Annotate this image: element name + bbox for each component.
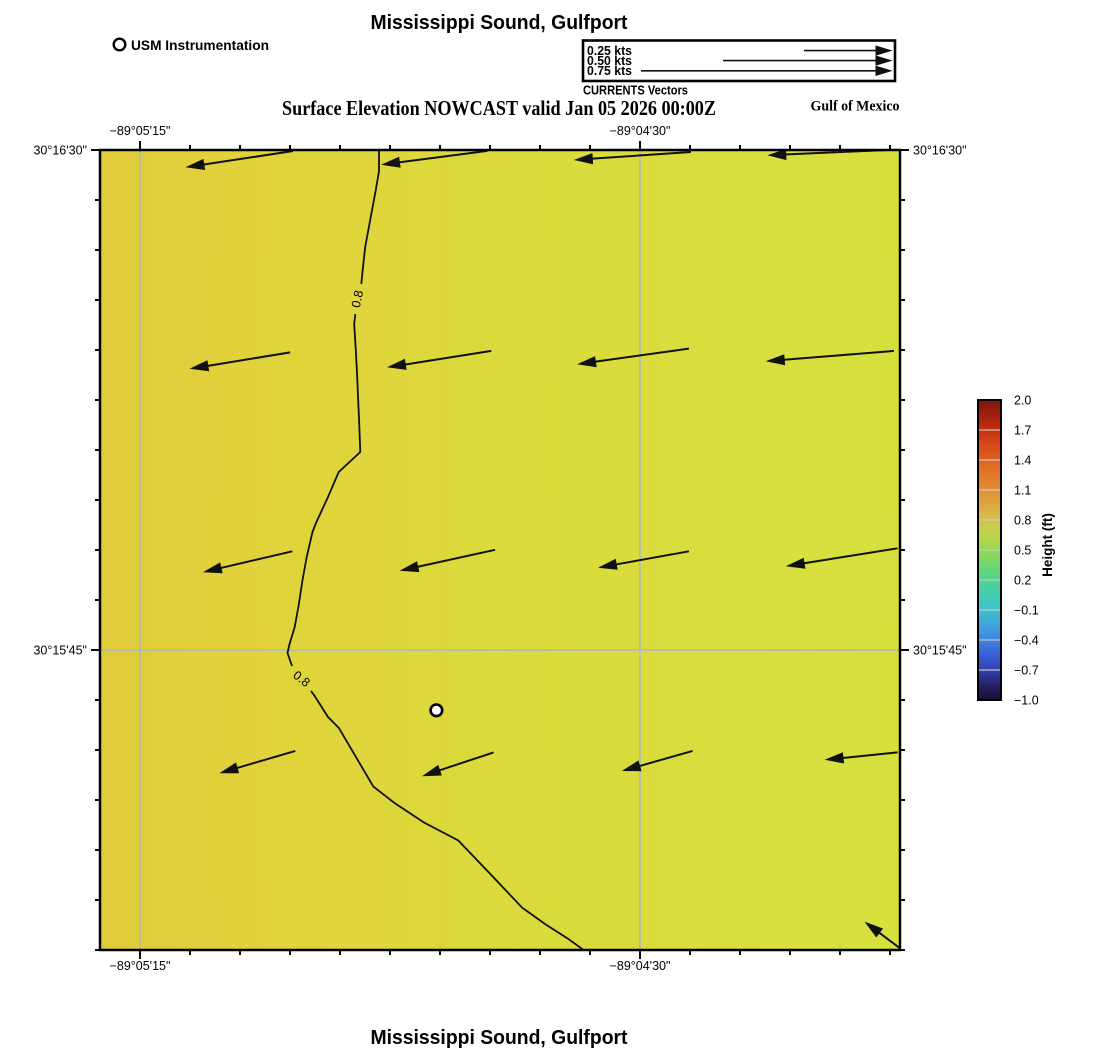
svg-text:1.7: 1.7 <box>1014 424 1031 438</box>
svg-text:−0.1: −0.1 <box>1014 604 1039 618</box>
svg-text:Gulf of Mexico: Gulf of Mexico <box>811 99 900 115</box>
svg-text:Mississippi Sound, Gulfport: Mississippi Sound, Gulfport <box>371 1027 628 1049</box>
svg-text:Surface Elevation NOWCAST vali: Surface Elevation NOWCAST valid Jan 05 2… <box>282 96 716 120</box>
svg-text:−1.0: −1.0 <box>1014 694 1039 708</box>
svg-text:Mississippi Sound, Gulfport: Mississippi Sound, Gulfport <box>371 12 628 34</box>
svg-text:−89°04'30": −89°04'30" <box>610 124 671 138</box>
svg-text:−0.4: −0.4 <box>1014 634 1039 648</box>
svg-text:−0.7: −0.7 <box>1014 664 1039 678</box>
svg-text:1.1: 1.1 <box>1014 484 1031 498</box>
svg-text:0.8: 0.8 <box>1014 514 1031 528</box>
svg-text:30°15'45": 30°15'45" <box>33 644 87 658</box>
svg-text:30°15'45": 30°15'45" <box>913 644 967 658</box>
svg-text:0.75 kts: 0.75 kts <box>587 64 632 78</box>
svg-text:30°16'30": 30°16'30" <box>913 144 967 158</box>
svg-text:0.2: 0.2 <box>1014 574 1031 588</box>
svg-text:Height (ft): Height (ft) <box>1040 513 1055 577</box>
svg-text:USM Instrumentation: USM Instrumentation <box>131 37 269 53</box>
svg-text:2.0: 2.0 <box>1014 394 1031 408</box>
svg-text:0.5: 0.5 <box>1014 544 1031 558</box>
svg-text:30°16'30": 30°16'30" <box>33 144 87 158</box>
svg-text:−89°05'15": −89°05'15" <box>110 124 171 138</box>
svg-text:1.4: 1.4 <box>1014 454 1031 468</box>
svg-text:−89°04'30": −89°04'30" <box>610 959 671 973</box>
svg-text:−89°05'15": −89°05'15" <box>110 959 171 973</box>
